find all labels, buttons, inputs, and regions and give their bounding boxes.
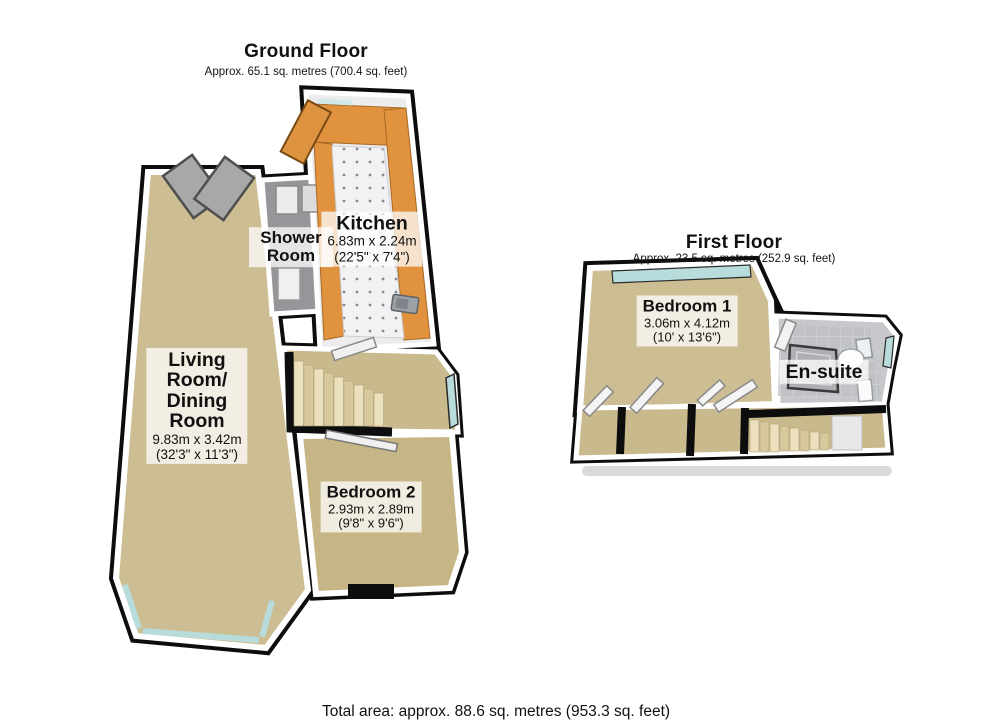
ground-floor-title: Ground Floor [244,41,368,63]
floorplan-page: Ground Floor Approx. 65.1 sq. metres (70… [0,0,1000,727]
first-floor-shadow [582,466,892,476]
bedroom2-wall-step [348,584,394,599]
kitchen-sink-icon [391,294,419,313]
bedroom1-label: Bedroom 1 3.06m x 4.12m (10' x 13'6") [637,295,738,346]
kitchen-window-glass [318,101,352,103]
kitchen-label: Kitchen 6.83m x 2.24m (22'5" x 7'4") [321,212,422,267]
first-floor-title: First Floor [686,232,782,254]
first-floor-subtitle: Approx. 23.5 sq. metres (252.9 sq. feet) [633,253,836,265]
stair-landing [832,416,862,450]
living-dining-label: Living Room/ Dining Room 9.83m x 3.42m (… [146,348,247,464]
total-area-label: Total area: approx. 88.6 sq. metres (953… [322,703,670,721]
bedroom2-label: Bedroom 2 2.93m x 2.89m (9'8" x 9'6") [321,481,422,532]
ensuite-label: En-suite [780,360,869,384]
ground-floor-subtitle: Approx. 65.1 sq. metres (700.4 sq. feet) [205,66,408,78]
